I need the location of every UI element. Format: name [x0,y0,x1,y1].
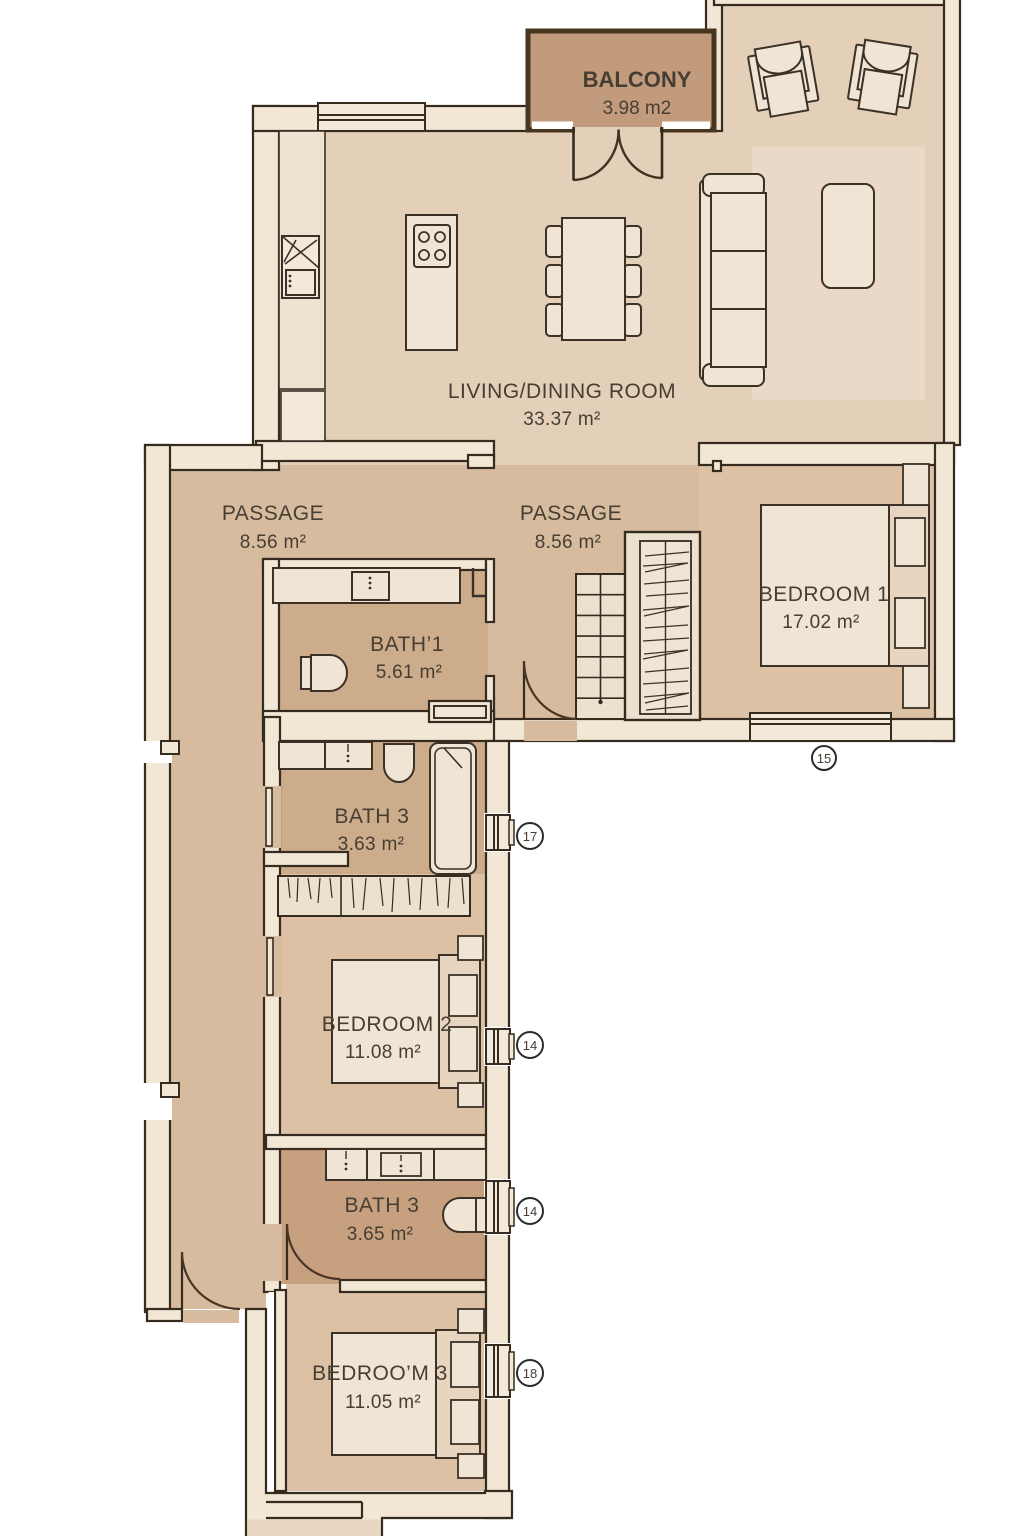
svg-text:PASSAGE: PASSAGE [222,502,324,525]
svg-text:BEDROOM 2: BEDROOM 2 [322,1013,453,1036]
svg-text:11.05 m²: 11.05 m² [345,1392,421,1413]
svg-text:BATH 3: BATH 3 [335,805,410,828]
svg-text:BATH 3: BATH 3 [345,1194,420,1217]
svg-text:LIVING/DINING ROOM: LIVING/DINING ROOM [448,380,676,403]
svg-text:18: 18 [523,1366,537,1381]
svg-text:17.02 m²: 17.02 m² [782,612,859,633]
svg-text:BALCONY: BALCONY [583,67,692,92]
svg-text:3.63 m²: 3.63 m² [338,834,405,855]
svg-text:15: 15 [817,751,831,766]
svg-text:11.08 m²: 11.08 m² [345,1042,421,1063]
svg-text:3.65 m²: 3.65 m² [347,1224,414,1245]
svg-text:5.61 m²: 5.61 m² [376,662,443,683]
svg-text:3.98 m2: 3.98 m2 [603,98,672,119]
svg-text:14: 14 [523,1038,537,1053]
svg-text:BEDROOM 1: BEDROOM 1 [759,583,890,606]
svg-text:33.37 m²: 33.37 m² [523,409,600,430]
svg-text:8.56 m²: 8.56 m² [535,532,602,553]
svg-text:14: 14 [523,1204,537,1219]
svg-text:BATH’1: BATH’1 [370,633,444,656]
svg-text:PASSAGE: PASSAGE [520,502,622,525]
svg-text:BEDROO’M 3: BEDROO’M 3 [312,1362,448,1385]
svg-text:8.56 m²: 8.56 m² [240,532,307,553]
svg-text:17: 17 [523,829,537,844]
